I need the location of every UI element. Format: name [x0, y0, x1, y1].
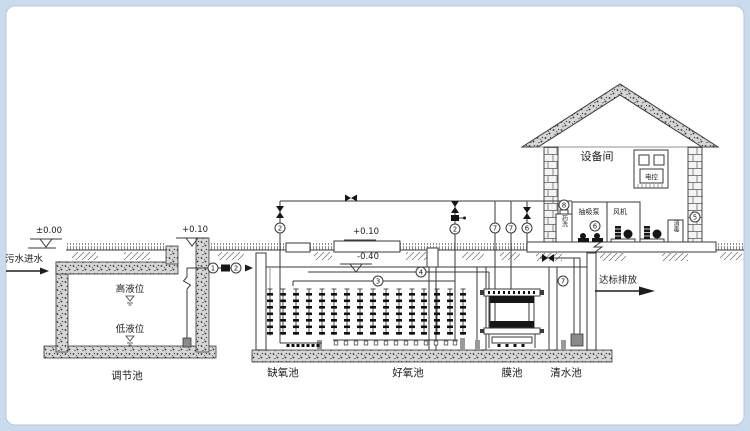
- svg-text:7: 7: [561, 278, 565, 286]
- pipe-tag: 7: [558, 276, 568, 286]
- svg-text:2: 2: [278, 225, 282, 233]
- low-level-label: 低液位: [116, 323, 145, 335]
- chemical-wash-label: 药洗: [561, 214, 568, 228]
- pipe-tag: 7: [506, 223, 516, 233]
- disinfection-label: 消毒: [672, 219, 679, 233]
- elevation-ground: ±0.00: [36, 226, 62, 236]
- regulating-tank-label: 调节池: [111, 369, 143, 382]
- access-curb-a: [286, 243, 310, 252]
- disinfection-box: 消毒: [668, 219, 683, 242]
- suction-pump-label: 抽吸泵: [579, 207, 600, 216]
- pipe-tag: 6: [590, 221, 600, 231]
- svg-text:4: 4: [419, 269, 424, 277]
- access-curb-b: [334, 241, 400, 252]
- pipe-tag: 2: [450, 224, 460, 234]
- svg-text:2: 2: [234, 265, 238, 273]
- aerobic-tank-label: 好氧池: [392, 366, 424, 379]
- pipe-tag: 5: [690, 212, 700, 222]
- anoxic-tank-label: 缺氧池: [267, 366, 299, 379]
- pipe-tag: 2: [231, 263, 241, 273]
- svg-text:3: 3: [376, 278, 380, 286]
- clear-water-tank-label: 清水池: [550, 366, 582, 379]
- tank-base-slab: [252, 350, 612, 362]
- elevation-reg-wall: +0.10: [182, 225, 208, 235]
- control-panel-label: 电控: [645, 172, 659, 181]
- drawing-canvas: 高液位 低液位 ±0.00 +0.10 +0.10 -0.40 污水进水: [0, 0, 750, 431]
- membrane-tank-label: 膜池: [502, 366, 523, 379]
- control-panel: 电控: [634, 150, 668, 188]
- clear-water-pump-icon: [571, 334, 583, 346]
- svg-text:5: 5: [693, 214, 697, 222]
- elevation-water: -0.40: [357, 252, 379, 262]
- pipe-tag: 3: [373, 276, 383, 286]
- pipe-tag: 6: [522, 223, 532, 233]
- svg-text:8: 8: [562, 202, 566, 210]
- equipment-room-label: 设备间: [581, 149, 614, 163]
- right-column: [688, 147, 702, 242]
- chemical-wash-tank: 药洗: [556, 210, 572, 242]
- outlet-label: 达标排放: [599, 274, 638, 286]
- high-level-label: 高液位: [116, 283, 145, 295]
- svg-text:2: 2: [453, 226, 457, 234]
- svg-text:7: 7: [509, 225, 513, 233]
- pipe-tag: 7: [490, 223, 500, 233]
- svg-text:7: 7: [493, 225, 497, 233]
- partition-pillar: [427, 248, 438, 267]
- pipe-tag: 1: [208, 263, 218, 273]
- pipe-tag: 4: [416, 267, 426, 277]
- svg-text:6: 6: [525, 225, 530, 233]
- submersible-pump-icon: [183, 338, 191, 347]
- transfer-pump-icon: [221, 265, 230, 272]
- pipe-tag: 2: [275, 223, 285, 233]
- inlet-label: 污水进水: [5, 253, 44, 265]
- floor-plinth: [527, 242, 716, 252]
- elevation-curb: +0.10: [353, 227, 379, 237]
- membrane-clear-wall: [549, 267, 557, 350]
- right-outer-wall: [587, 253, 596, 350]
- anoxic-left-wall: [256, 253, 266, 350]
- process-flow-diagram: 高液位 低液位 ±0.00 +0.10 +0.10 -0.40 污水进水: [0, 0, 750, 431]
- solenoid-valve-icon: [451, 215, 459, 221]
- aerobic-membrane-wall: [477, 267, 486, 350]
- pipe-tag: 8: [559, 200, 569, 210]
- blower-label: 风机: [613, 207, 627, 216]
- svg-text:1: 1: [211, 265, 215, 273]
- svg-text:6: 6: [593, 223, 598, 231]
- inlet: 污水进水: [5, 253, 49, 275]
